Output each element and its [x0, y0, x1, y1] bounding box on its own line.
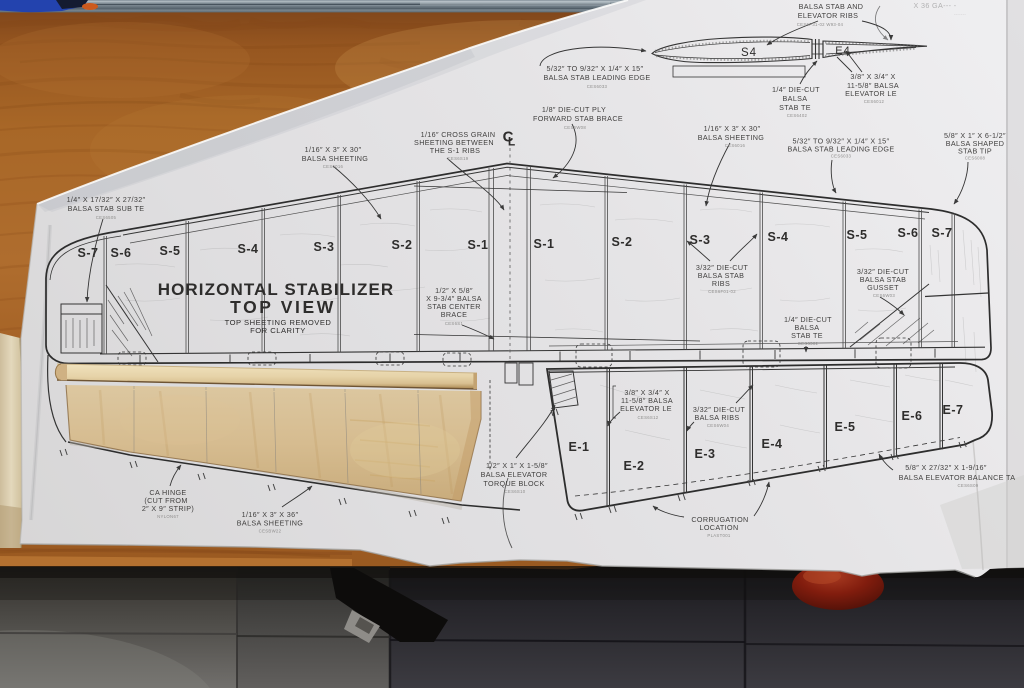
svg-text:GUSSET: GUSSET: [867, 283, 899, 292]
svg-text:CES6402: CES6402: [787, 113, 808, 118]
svg-text:S-1: S-1: [468, 238, 489, 252]
svg-text:CES6S19: CES6S19: [448, 156, 469, 161]
svg-text:E-3: E-3: [695, 447, 716, 461]
svg-text:STAB TE: STAB TE: [791, 331, 823, 340]
svg-text:S-5: S-5: [160, 244, 181, 258]
svg-text:CES6016: CES6016: [725, 143, 746, 148]
svg-text:3/8″ X 3/4″ X: 3/8″ X 3/4″ X: [850, 72, 895, 81]
svg-text:BALSA STAB SUB TE: BALSA STAB SUB TE: [68, 204, 145, 213]
svg-text:CES6012: CES6012: [864, 99, 885, 104]
svg-text:CES6505: CES6505: [96, 215, 117, 220]
svg-text:5/32″ TO 9/32″ X 1/4″ X 15″: 5/32″ TO 9/32″ X 1/4″ X 15″: [547, 64, 644, 73]
svg-text:-------: -------: [954, 12, 966, 17]
svg-text:S-1: S-1: [534, 237, 555, 251]
svg-text:CES6008: CES6008: [965, 156, 986, 161]
svg-text:ELEVATOR LE: ELEVATOR LE: [620, 404, 672, 413]
svg-text:STAB TIP: STAB TIP: [958, 147, 992, 156]
svg-text:STAB TE: STAB TE: [779, 103, 811, 112]
svg-text:S-3: S-3: [690, 233, 711, 247]
svg-text:X 36 GA--- -: X 36 GA--- -: [914, 1, 957, 10]
svg-text:ELEVATOR RIBS: ELEVATOR RIBS: [798, 11, 858, 20]
svg-text:1/16″ X 3″ X 30″: 1/16″ X 3″ X 30″: [305, 145, 362, 154]
svg-text:BRACE: BRACE: [441, 310, 468, 319]
svg-text:CES6W08: CES6W08: [564, 125, 586, 130]
svg-text:CES6W03: CES6W03: [873, 293, 895, 298]
svg-text:1/4″ X 17/32″ X 27/32″: 1/4″ X 17/32″ X 27/32″: [67, 195, 146, 204]
svg-text:S-4: S-4: [238, 242, 259, 256]
svg-text:S-4: S-4: [768, 230, 789, 244]
svg-text:BALSA RIBS: BALSA RIBS: [694, 413, 739, 422]
svg-text:CES6W04: CES6W04: [707, 423, 729, 428]
svg-text:CES6033: CES6033: [587, 84, 608, 89]
svg-text:S4: S4: [741, 47, 757, 59]
svg-text:S-5: S-5: [847, 228, 868, 242]
svg-text:E-2: E-2: [624, 459, 645, 473]
svg-text:E-4: E-4: [762, 437, 783, 451]
svg-text:S-7: S-7: [78, 246, 99, 260]
svg-text:BALSA ELEVATOR: BALSA ELEVATOR: [481, 470, 548, 479]
svg-text:TOP VIEW: TOP VIEW: [230, 297, 336, 317]
svg-text:S-3: S-3: [314, 240, 335, 254]
svg-text:LOCATION: LOCATION: [699, 523, 738, 532]
svg-text:CES6S12: CES6S12: [638, 415, 659, 420]
svg-text:CES6P31-02 W93-04: CES6P31-02 W93-04: [797, 22, 844, 27]
svg-text:2″ X 9″ STRIP): 2″ X 9″ STRIP): [142, 504, 194, 513]
svg-text:1/2″ X 1″ X 1-5/8″: 1/2″ X 1″ X 1-5/8″: [486, 461, 548, 470]
svg-text:BALSA SHEETING: BALSA SHEETING: [237, 519, 303, 528]
svg-text:L: L: [508, 135, 515, 149]
svg-text:E-5: E-5: [835, 420, 856, 434]
svg-text:BALSA STAB LEADING EDGE: BALSA STAB LEADING EDGE: [788, 145, 895, 154]
svg-text:1/4″ DIE-CUT: 1/4″ DIE-CUT: [772, 85, 820, 94]
svg-text:PLAST001: PLAST001: [707, 533, 730, 538]
svg-text:S-6: S-6: [111, 246, 132, 260]
svg-text:FORWARD STAB BRACE: FORWARD STAB BRACE: [533, 114, 623, 123]
svg-text:FOR CLARITY: FOR CLARITY: [250, 326, 306, 335]
svg-text:S-7: S-7: [932, 226, 953, 240]
svg-text:TORQUE BLOCK: TORQUE BLOCK: [483, 479, 544, 488]
svg-text:BALSA SHEETING: BALSA SHEETING: [302, 154, 368, 163]
svg-text:E-1: E-1: [569, 440, 590, 454]
svg-text:RIBS: RIBS: [712, 279, 730, 288]
svg-text:S-6: S-6: [898, 226, 919, 240]
svg-text:BALSA STAB AND: BALSA STAB AND: [799, 2, 864, 11]
svg-text:1/16″ X 3″ X 30″: 1/16″ X 3″ X 30″: [704, 124, 761, 133]
svg-text:CES6S1: CES6S1: [445, 321, 464, 326]
svg-text:CES6502: CES6502: [798, 341, 819, 346]
svg-text:BALSA SHEETING: BALSA SHEETING: [698, 133, 764, 142]
svg-text:S-2: S-2: [392, 238, 413, 252]
svg-text:CES6033: CES6033: [831, 154, 852, 159]
svg-text:THE S-1 RIBS: THE S-1 RIBS: [430, 146, 481, 155]
svg-text:NYLON67: NYLON67: [157, 514, 179, 519]
svg-text:CES6S09: CES6S09: [958, 483, 979, 488]
svg-text:CESBW22: CESBW22: [259, 529, 282, 534]
svg-text:BALSA STAB LEADING EDGE: BALSA STAB LEADING EDGE: [544, 73, 651, 82]
svg-text:E-7: E-7: [943, 403, 964, 417]
svg-text:E4: E4: [835, 45, 850, 57]
svg-text:BALSA: BALSA: [783, 94, 808, 103]
svg-text:5/8″ X 27/32″ X 1-9/16″: 5/8″ X 27/32″ X 1-9/16″: [905, 463, 987, 472]
svg-text:1/8″ DIE-CUT PLY: 1/8″ DIE-CUT PLY: [542, 105, 606, 114]
svg-text:S-2: S-2: [612, 235, 633, 249]
svg-text:ELEVATOR LE: ELEVATOR LE: [845, 89, 897, 98]
svg-text:CES6016: CES6016: [323, 164, 344, 169]
svg-text:BALSA ELEVATOR BALANCE TA: BALSA ELEVATOR BALANCE TA: [899, 473, 1016, 482]
svg-text:E-6: E-6: [902, 409, 923, 423]
svg-text:CES6S10: CES6S10: [505, 489, 526, 494]
svg-text:CES6F01-02: CES6F01-02: [708, 289, 736, 294]
